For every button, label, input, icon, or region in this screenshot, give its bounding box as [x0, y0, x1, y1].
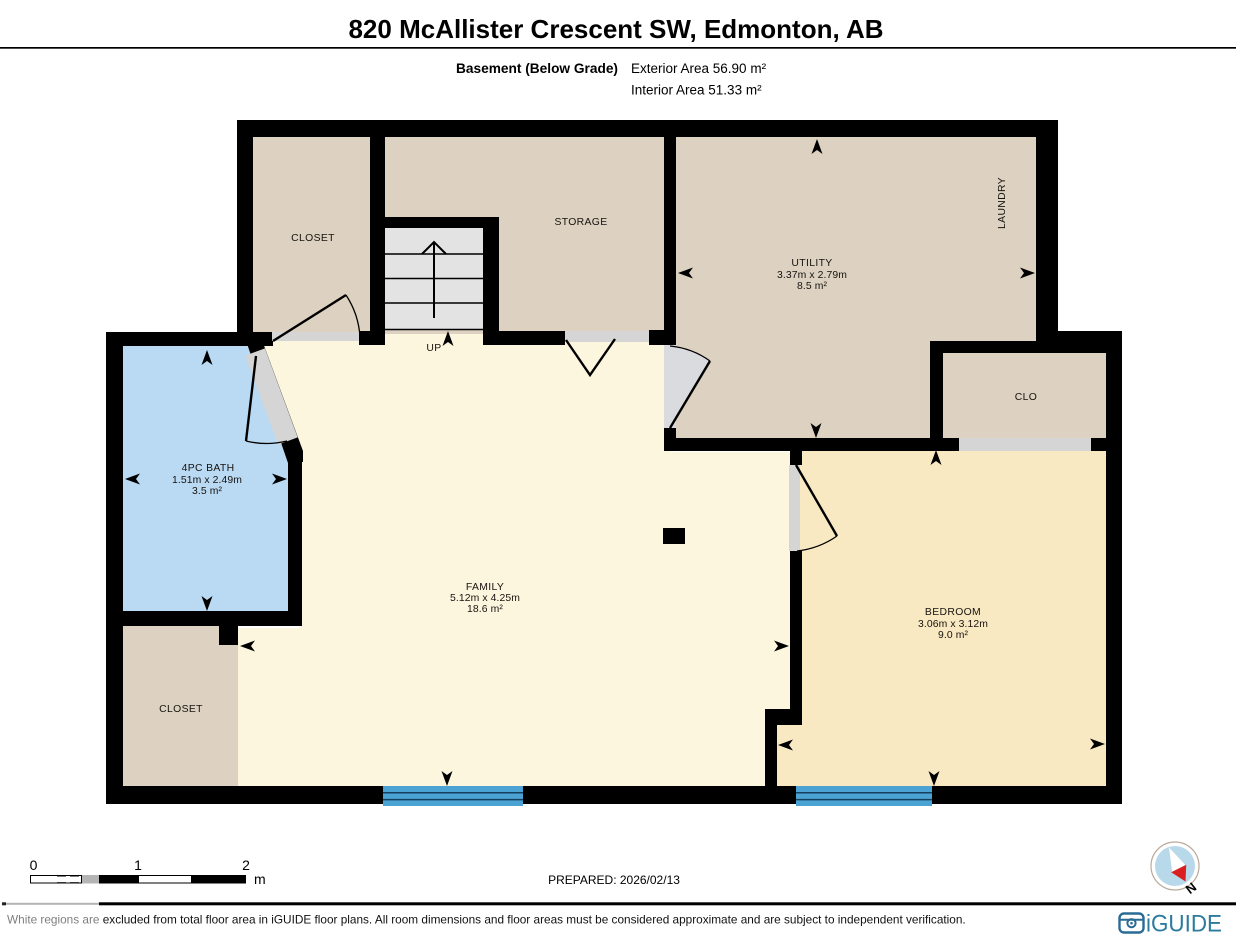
svg-text:2: 2	[242, 857, 250, 873]
svg-text:0: 0	[30, 857, 38, 873]
svg-text:BEDROOM: BEDROOM	[925, 607, 981, 618]
svg-text:Exterior Area 56.90 m²: Exterior Area 56.90 m²	[631, 61, 767, 76]
svg-text:9.0 m²: 9.0 m²	[938, 630, 968, 641]
svg-text:18.6 m²: 18.6 m²	[467, 604, 503, 615]
svg-text:1.51m x 2.49m: 1.51m x 2.49m	[172, 475, 242, 486]
svg-text:CLO: CLO	[1015, 392, 1037, 403]
svg-text:5.12m x 4.25m: 5.12m x 4.25m	[450, 593, 520, 604]
svg-text:White regions are excluded fro: White regions are excluded from total fl…	[7, 913, 966, 927]
svg-text:Interior Area 51.33 m²: Interior Area 51.33 m²	[631, 83, 762, 98]
svg-text:LAUNDRY: LAUNDRY	[997, 177, 1008, 229]
svg-text:PREPARED: 2026/02/13: PREPARED: 2026/02/13	[548, 873, 680, 887]
svg-text:4PC BATH: 4PC BATH	[182, 463, 235, 474]
svg-text:UP: UP	[426, 343, 441, 354]
svg-text:8.5 m²: 8.5 m²	[797, 281, 827, 292]
svg-text:CLOSET: CLOSET	[291, 233, 335, 244]
svg-text:3.06m x 3.12m: 3.06m x 3.12m	[918, 619, 988, 630]
svg-text:Basement (Below Grade): Basement (Below Grade)	[456, 61, 618, 76]
svg-text:CLOSET: CLOSET	[159, 704, 203, 715]
svg-text:iGUIDE: iGUIDE	[1146, 911, 1222, 938]
svg-text:m: m	[254, 871, 266, 887]
svg-text:3.5 m²: 3.5 m²	[192, 486, 222, 497]
svg-text:FAMILY: FAMILY	[466, 582, 504, 593]
svg-text:STORAGE: STORAGE	[554, 217, 607, 228]
svg-text:3.37m x 2.79m: 3.37m x 2.79m	[777, 270, 847, 281]
svg-text:820 McAllister Crescent SW, Ed: 820 McAllister Crescent SW, Edmonton, AB	[348, 14, 883, 44]
svg-text:1: 1	[134, 857, 142, 873]
svg-text:UTILITY: UTILITY	[791, 258, 832, 269]
